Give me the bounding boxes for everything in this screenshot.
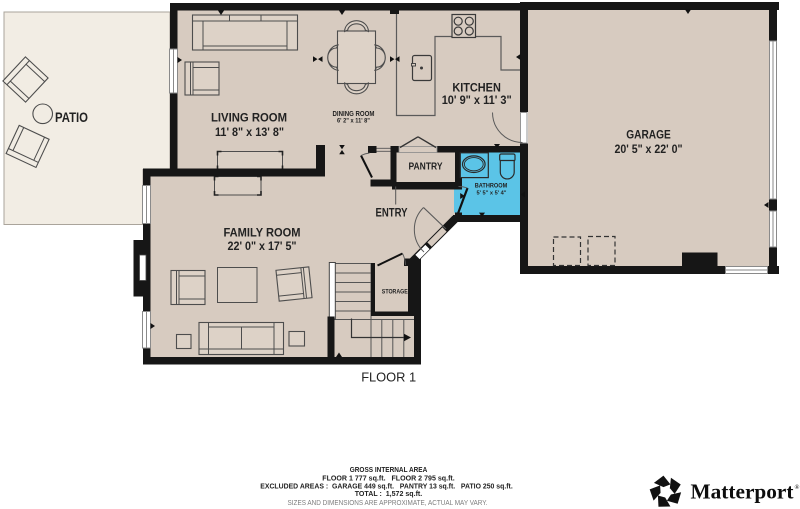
svg-text:6' 2" x 11' 8": 6' 2" x 11' 8" xyxy=(337,118,370,125)
svg-text:STORAGE: STORAGE xyxy=(382,289,408,296)
svg-text:LIVING ROOM: LIVING ROOM xyxy=(211,111,287,125)
svg-text:GROSS INTERNAL AREA: GROSS INTERNAL AREA xyxy=(350,466,428,474)
svg-text:PATIO: PATIO xyxy=(55,109,88,125)
svg-text:ENTRY: ENTRY xyxy=(376,206,408,220)
svg-text:10' 9" x 11' 3": 10' 9" x 11' 3" xyxy=(442,93,512,107)
svg-text:FLOOR 1 777 sq.ft. FLOOR 2 7: FLOOR 1 777 sq.ft. FLOOR 2 795 sq.ft. xyxy=(322,475,455,483)
svg-text:TOTAL : 1,572 sq.ft.: TOTAL : 1,572 sq.ft. xyxy=(355,490,423,498)
svg-text:BATHROOM: BATHROOM xyxy=(475,183,508,190)
svg-text:GARAGE: GARAGE xyxy=(626,128,671,142)
svg-text:KITCHEN: KITCHEN xyxy=(452,80,501,94)
svg-text:SIZES AND DIMENSIONS ARE APPRO: SIZES AND DIMENSIONS ARE APPROXIMATE, AC… xyxy=(288,498,488,507)
svg-text:22' 0" x 17' 5": 22' 0" x 17' 5" xyxy=(228,239,297,253)
svg-text:FAMILY ROOM: FAMILY ROOM xyxy=(224,225,301,239)
svg-text:PANTRY: PANTRY xyxy=(409,162,443,173)
svg-text:®: ® xyxy=(795,484,800,491)
svg-text:20' 5" x 22' 0": 20' 5" x 22' 0" xyxy=(615,142,683,156)
svg-text:5' 5" x 5' 4": 5' 5" x 5' 4" xyxy=(477,190,507,196)
svg-text:Matterport: Matterport xyxy=(691,480,795,504)
svg-text:FLOOR 1: FLOOR 1 xyxy=(361,369,416,384)
svg-text:11' 8" x 13' 8": 11' 8" x 13' 8" xyxy=(215,125,284,139)
